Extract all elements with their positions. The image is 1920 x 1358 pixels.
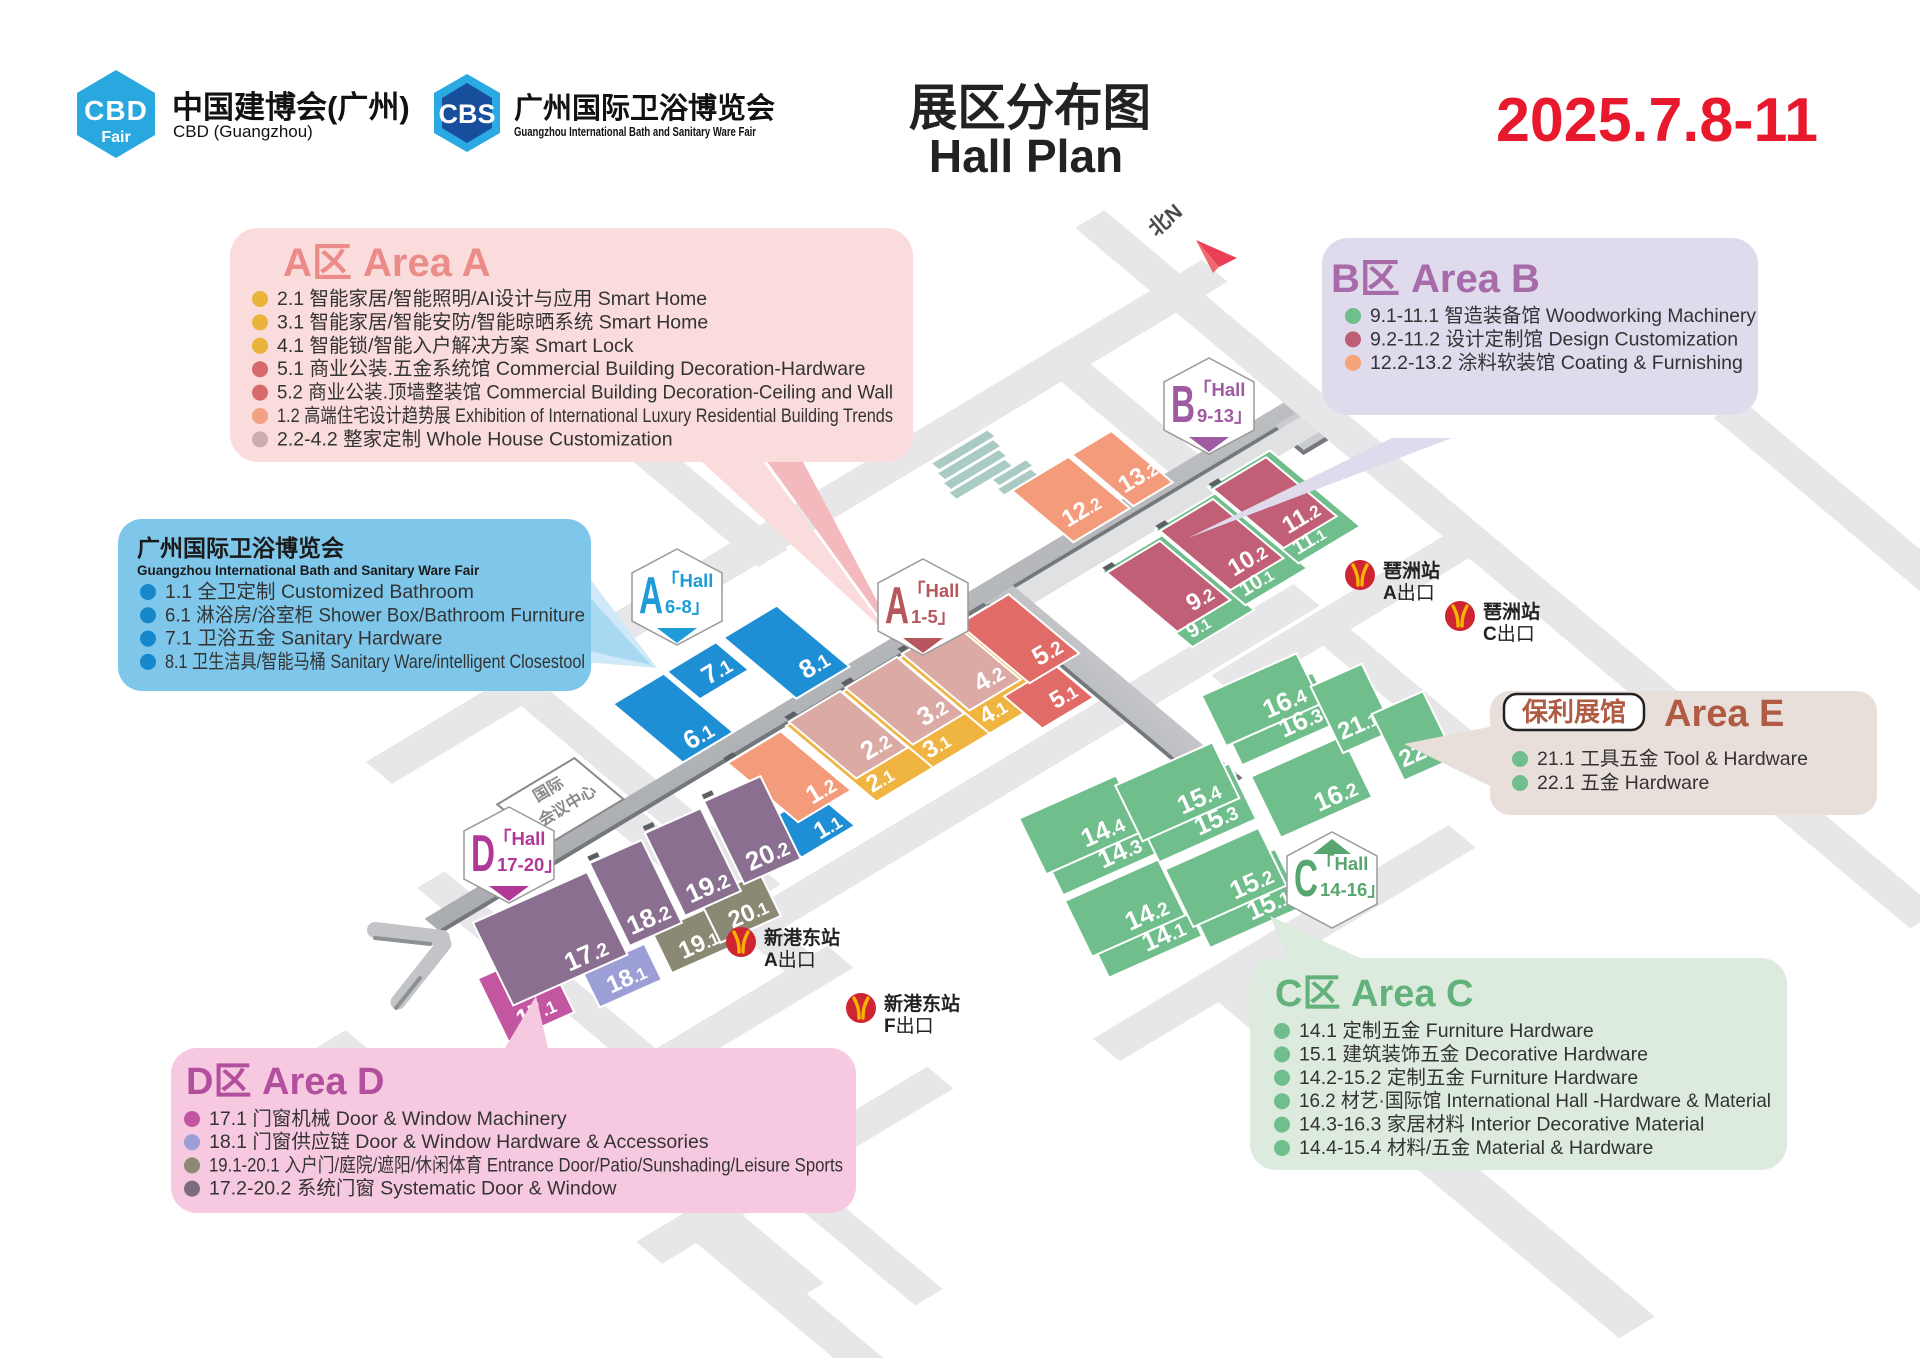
- svg-text:9.2-11.2 设计定制馆 Design Customiz: 9.2-11.2 设计定制馆 Design Customization: [1370, 328, 1738, 350]
- svg-text:17-20」: 17-20」: [497, 854, 563, 875]
- svg-text:3.1 智能家居/智能安防/智能晾晒系统 Smart Hom: 3.1 智能家居/智能安防/智能晾晒系统 Smart Home: [277, 311, 708, 333]
- svg-text:Area E: Area E: [1664, 693, 1784, 735]
- svg-text:21.1 工具五金 Tool & Hardware: 21.1 工具五金 Tool & Hardware: [1537, 748, 1808, 770]
- svg-text:17.1 门窗机械 Door & Window Machi: 17.1 门窗机械 Door & Window Machinery: [209, 1108, 567, 1130]
- svg-text:14.4-15.4 材料/五金 Material & Har: 14.4-15.4 材料/五金 Material & Hardware: [1299, 1137, 1653, 1159]
- svg-text:C: C: [1294, 850, 1318, 908]
- svg-text:新港东站: 新港东站: [764, 926, 840, 949]
- svg-text:2.1 智能家居/智能照明/AI设计与应用 Smart Ho: 2.1 智能家居/智能照明/AI设计与应用 Smart Home: [277, 288, 707, 310]
- svg-text:1.2 高端住宅设计趋势展 Exhibition of In: 1.2 高端住宅设计趋势展 Exhibition of Internationa…: [277, 405, 893, 427]
- svg-text:琶洲站: 琶洲站: [1483, 600, 1540, 623]
- svg-text:6.1 淋浴房/浴室柜 Shower Box/Bathroo: 6.1 淋浴房/浴室柜 Shower Box/Bathroom Furnitur…: [165, 604, 585, 626]
- svg-text:4.1 智能锁/智能入户解决方案 Smart Lock: 4.1 智能锁/智能入户解决方案 Smart Lock: [277, 335, 634, 357]
- svg-text:15.1 建筑装饰五金 Decorative Hardwar: 15.1 建筑装饰五金 Decorative Hardware: [1299, 1043, 1648, 1065]
- svg-text:C出口: C出口: [1483, 623, 1535, 645]
- svg-text:18.1 门窗供应链 Door & Window Hard: 18.1 门窗供应链 Door & Window Hardware & Acce…: [209, 1131, 709, 1153]
- svg-text:1.1 全卫定制 Customized Bathroom: 1.1 全卫定制 Customized Bathroom: [165, 581, 474, 603]
- svg-text:19.1-20.1 入户门/庭院/遮阳/休闲体育 Entra: 19.1-20.1 入户门/庭院/遮阳/休闲体育 Entrance Door/P…: [209, 1154, 843, 1176]
- svg-text:Guangzhou International Bath a: Guangzhou International Bath and Sanitar…: [137, 563, 480, 578]
- svg-text:广州国际卫浴博览会: 广州国际卫浴博览会: [514, 92, 775, 125]
- svg-text:1-5」: 1-5」: [911, 606, 956, 627]
- svg-text:Fair: Fair: [101, 129, 130, 146]
- svg-text:CBS: CBS: [438, 99, 495, 129]
- svg-text:广州国际卫浴博览会: 广州国际卫浴博览会: [137, 535, 344, 561]
- svg-text:F出口: F出口: [884, 1015, 934, 1037]
- svg-text:「Hall: 「Hall: [1193, 379, 1245, 400]
- svg-text:8.1 卫生洁具/智能马桶 Sanitary Ware/in: 8.1 卫生洁具/智能马桶 Sanitary Ware/intelligent …: [165, 651, 585, 673]
- svg-text:5.2 商业公装.顶墙整装馆 Commercial Buil: 5.2 商业公装.顶墙整装馆 Commercial Building Decor…: [277, 382, 893, 404]
- svg-text:2025.7.8-11: 2025.7.8-11: [1496, 86, 1818, 155]
- svg-text:9.1-11.1 智造装备馆 Woodworking Mac: 9.1-11.1 智造装备馆 Woodworking Machinery: [1370, 305, 1756, 327]
- svg-text:CBD: CBD: [84, 95, 148, 126]
- svg-text:A出口: A出口: [764, 949, 816, 971]
- svg-text:A: A: [639, 567, 663, 625]
- svg-text:新港东站: 新港东站: [884, 992, 960, 1015]
- svg-text:6-8」: 6-8」: [665, 596, 710, 617]
- svg-text:2.2-4.2 整家定制 Whole House Custo: 2.2-4.2 整家定制 Whole House Customization: [277, 428, 673, 450]
- svg-text:A区 Area A: A区 Area A: [283, 241, 490, 285]
- svg-text:D: D: [471, 825, 495, 883]
- svg-text:琶洲站: 琶洲站: [1383, 559, 1440, 582]
- svg-text:「Hall: 「Hall: [1316, 853, 1368, 874]
- svg-text:5.1 商业公装.五金系统馆 Commercial Buil: 5.1 商业公装.五金系统馆 Commercial Building Decor…: [277, 358, 865, 380]
- svg-text:A: A: [885, 577, 909, 635]
- svg-text:14.1 定制五金 Furniture Hardware: 14.1 定制五金 Furniture Hardware: [1299, 1020, 1594, 1042]
- svg-text:A出口: A出口: [1383, 582, 1435, 604]
- svg-text:17.2-20.2 系统门窗 Systematic Door: 17.2-20.2 系统门窗 Systematic Door & Window: [209, 1178, 617, 1200]
- svg-text:中国建博会(广州): 中国建博会(广州): [172, 90, 410, 125]
- svg-text:B: B: [1171, 376, 1195, 434]
- svg-text:B区 Area B: B区 Area B: [1331, 257, 1540, 301]
- svg-text:Guangzhou International Bath a: Guangzhou International Bath and Sanitar…: [514, 124, 756, 139]
- svg-text:14.3-16.3 家居材料 Interior Decora: 14.3-16.3 家居材料 Interior Decorative Mater…: [1299, 1114, 1704, 1136]
- svg-text:14-16」: 14-16」: [1320, 879, 1386, 900]
- svg-text:「Hall: 「Hall: [661, 570, 713, 591]
- svg-text:Hall Plan: Hall Plan: [929, 130, 1123, 182]
- svg-text:「Hall: 「Hall: [907, 580, 959, 601]
- svg-text:7.1 卫浴五金 Sanitary Hardware: 7.1 卫浴五金 Sanitary Hardware: [165, 628, 442, 650]
- svg-text:「Hall: 「Hall: [493, 828, 545, 849]
- svg-text:保利展馆: 保利展馆: [1521, 697, 1626, 727]
- svg-text:9-13」: 9-13」: [1197, 405, 1253, 426]
- svg-text:22.1 五金 Hardware: 22.1 五金 Hardware: [1537, 772, 1709, 794]
- svg-text:CBD (Guangzhou): CBD (Guangzhou): [173, 122, 313, 141]
- svg-text:16.2 材艺·国际馆 International Hall: 16.2 材艺·国际馆 International Hall -Hardware…: [1299, 1090, 1771, 1112]
- svg-text:D区 Area D: D区 Area D: [186, 1061, 385, 1103]
- svg-text:展区分布图: 展区分布图: [909, 80, 1151, 136]
- svg-text:12.2-13.2 涂料软装馆 Coating & Furn: 12.2-13.2 涂料软装馆 Coating & Furnishing: [1370, 352, 1743, 374]
- svg-text:C区 Area C: C区 Area C: [1275, 973, 1474, 1015]
- svg-text:14.2-15.2 定制五金 Furniture Hardw: 14.2-15.2 定制五金 Furniture Hardware: [1299, 1067, 1638, 1089]
